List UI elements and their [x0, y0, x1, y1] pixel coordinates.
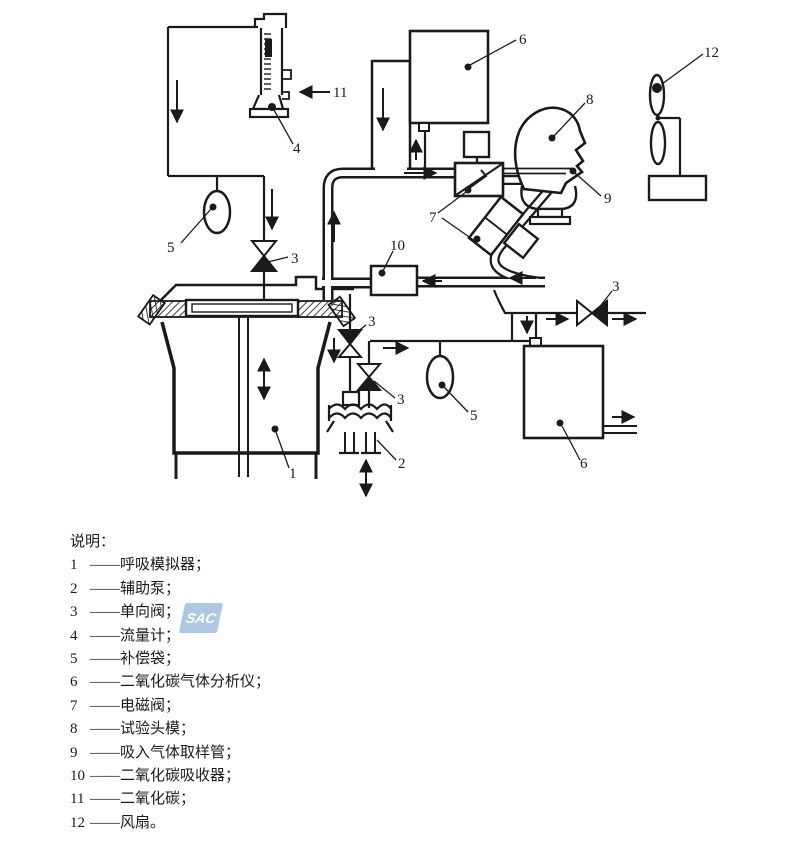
flow-meter-float — [265, 39, 272, 57]
callout-3-low: 3 — [397, 392, 405, 408]
breathing-simulator — [138, 295, 355, 479]
callout-4: 4 — [293, 141, 301, 157]
legend-item: 4——流量计； — [70, 625, 270, 648]
callout-7: 7 — [429, 210, 437, 226]
analyzer-outlet — [603, 426, 637, 433]
co2-absorber — [371, 266, 417, 295]
co2-analyzer-right — [524, 338, 637, 438]
callout-1: 1 — [289, 466, 297, 482]
callout-9: 9 — [604, 191, 612, 207]
solenoid-valve-top — [455, 132, 503, 196]
check-valve-pump-out — [358, 364, 380, 390]
fan-base — [649, 176, 706, 200]
callout-8: 8 — [586, 92, 594, 108]
legend-item: 10——二氧化碳吸收器； — [70, 765, 270, 788]
callout-10: 10 — [390, 238, 405, 254]
solenoid-coil — [464, 132, 489, 157]
flow-meter — [250, 14, 291, 117]
check-valve-pump-in — [339, 330, 361, 357]
test-head — [515, 108, 585, 224]
legend-item: 6——二氧化碳气体分析仪； — [70, 671, 270, 694]
figure-page: 6 8 12 11 4 9 7 5 3 10 3 3 3 5 1 2 6 SAC… — [0, 0, 806, 846]
legend-item: 11——二氧化碳； — [70, 788, 270, 811]
legend-heading: 说明： — [70, 531, 270, 554]
callout-3-mid: 3 — [368, 314, 376, 330]
legend-item: 1——呼吸模拟器； — [70, 554, 270, 577]
callout-5-left: 5 — [167, 240, 175, 256]
legend-item: 12——风扇。 — [70, 812, 270, 835]
callout-2: 2 — [398, 456, 406, 472]
callout-6-top: 6 — [519, 32, 527, 48]
co2-supply-lines — [168, 27, 264, 303]
callout-6-right: 6 — [580, 456, 588, 472]
co2-analyzer-top — [410, 31, 488, 131]
cylinder-body — [162, 322, 330, 453]
air-duct — [372, 61, 410, 168]
piston-plate — [186, 300, 298, 316]
callout-12: 12 — [704, 45, 719, 61]
callout-3-left: 3 — [291, 251, 299, 267]
legend-item: 5——补偿袋； — [70, 648, 270, 671]
legend-item: 3——单向阀； — [70, 601, 270, 624]
callout-3-right: 3 — [612, 279, 620, 295]
callout-5-right: 5 — [470, 408, 478, 424]
legend-item: 9——吸入气体取样管； — [70, 742, 270, 765]
legend: 说明： 1——呼吸模拟器； 2——辅助泵； 3——单向阀； 4——流量计； 5—… — [70, 531, 270, 835]
duct-junction — [375, 166, 407, 174]
check-valve-exhaust — [577, 301, 607, 325]
callout-11: 11 — [333, 85, 347, 101]
auxiliary-pump — [327, 392, 393, 496]
legend-item: 7——电磁阀； — [70, 695, 270, 718]
legend-item: 2——辅助泵； — [70, 578, 270, 601]
fan-blade-dark — [652, 83, 662, 93]
fan — [649, 75, 706, 200]
check-valve-left — [252, 241, 276, 271]
legend-item: 8——试验头模； — [70, 718, 270, 741]
